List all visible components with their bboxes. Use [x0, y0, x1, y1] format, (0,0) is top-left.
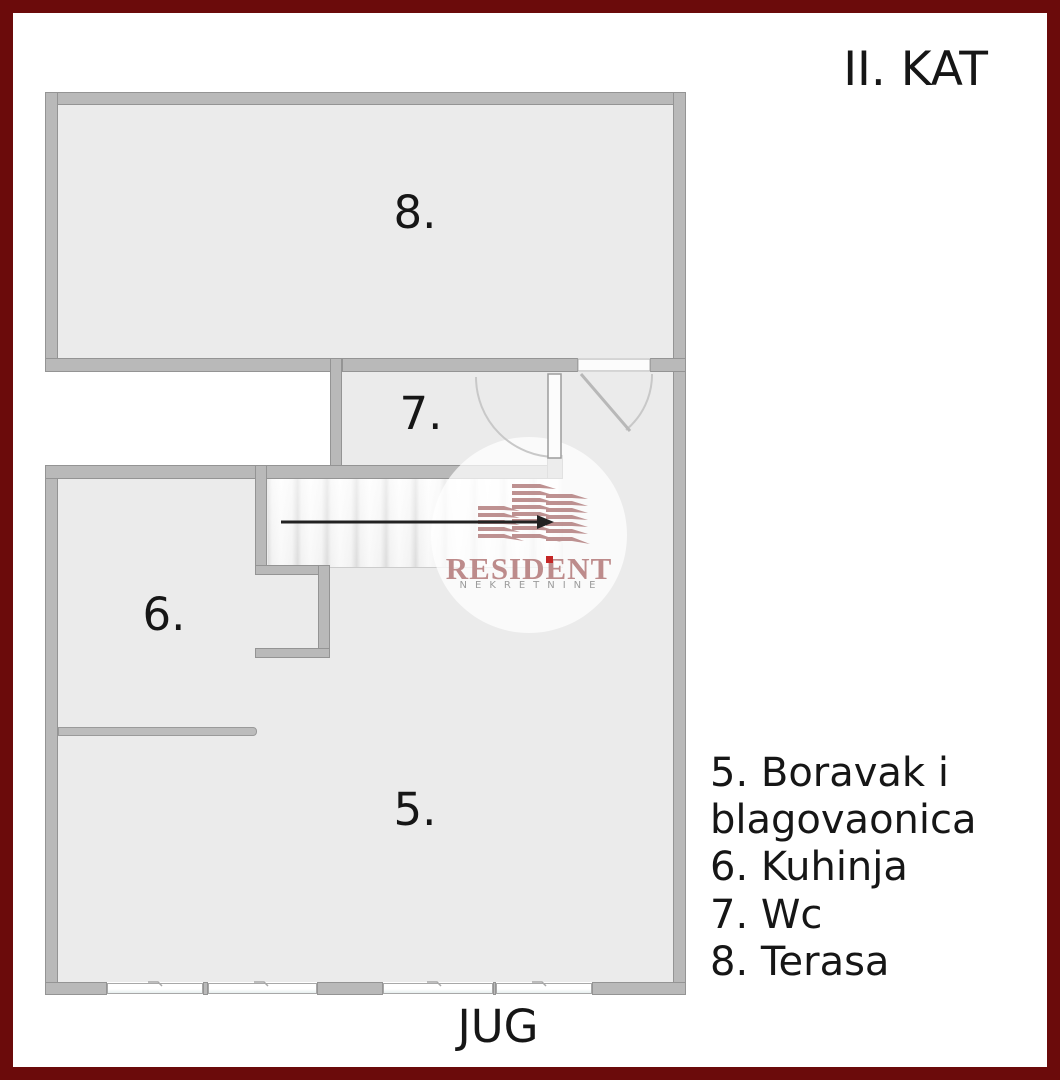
window-south-1: [107, 983, 203, 994]
wall-stairwell-bottom: [255, 648, 330, 658]
resident-buildings-logo-icon: [468, 480, 590, 546]
watermark-subtitle-text: NEKRETNINE: [424, 580, 639, 591]
legend-item-boravak: 5. Boravak i blagovaonica: [710, 750, 1010, 844]
window-south-4: [496, 983, 592, 994]
room-label-kuhinja: 6.: [119, 586, 209, 644]
wall-right: [673, 92, 686, 995]
legend-item-wc: 7. Wc: [710, 892, 1010, 939]
room-label-wc: 7.: [376, 385, 466, 443]
wall-bottom-pier-5: [592, 982, 686, 995]
wall-wc-left: [330, 358, 342, 479]
wall-bottom-pier-1: [45, 982, 107, 995]
wall-left-upper: [45, 92, 58, 372]
orientation-label-south: JUG: [418, 1000, 578, 1053]
legend-item-kuhinja: 6. Kuhinja: [710, 844, 1010, 891]
window-south-2: [208, 983, 317, 994]
room-label-terasa: 8.: [370, 184, 460, 242]
terrace-door-opening: [578, 359, 650, 371]
watermark-red-dot: [546, 556, 553, 563]
wall-top: [45, 92, 686, 105]
kitchen-counter-halfwall: [58, 727, 257, 736]
wall-left-lower: [45, 466, 58, 995]
room-label-boravak: 5.: [370, 781, 460, 839]
wall-terrace-bottom-mid: [342, 358, 578, 372]
wall-stairwell-right: [318, 565, 330, 658]
terrace-floor: [58, 105, 673, 358]
wall-stairs-left: [255, 465, 267, 572]
wall-terrace-bottom-right: [650, 358, 686, 372]
legend-item-terasa: 8. Terasa: [710, 939, 1010, 986]
page-title: II. KAT: [808, 42, 988, 97]
legend: 5. Boravak i blagovaonica 6. Kuhinja 7. …: [710, 750, 1010, 986]
wall-bottom-pier-3: [317, 982, 383, 995]
wall-terrace-bottom-left: [45, 358, 332, 372]
window-south-3: [383, 983, 493, 994]
floor-plan-page: RESIDENT NEKRETNINE 8. 7. 6. 5. II. KAT …: [0, 0, 1060, 1080]
